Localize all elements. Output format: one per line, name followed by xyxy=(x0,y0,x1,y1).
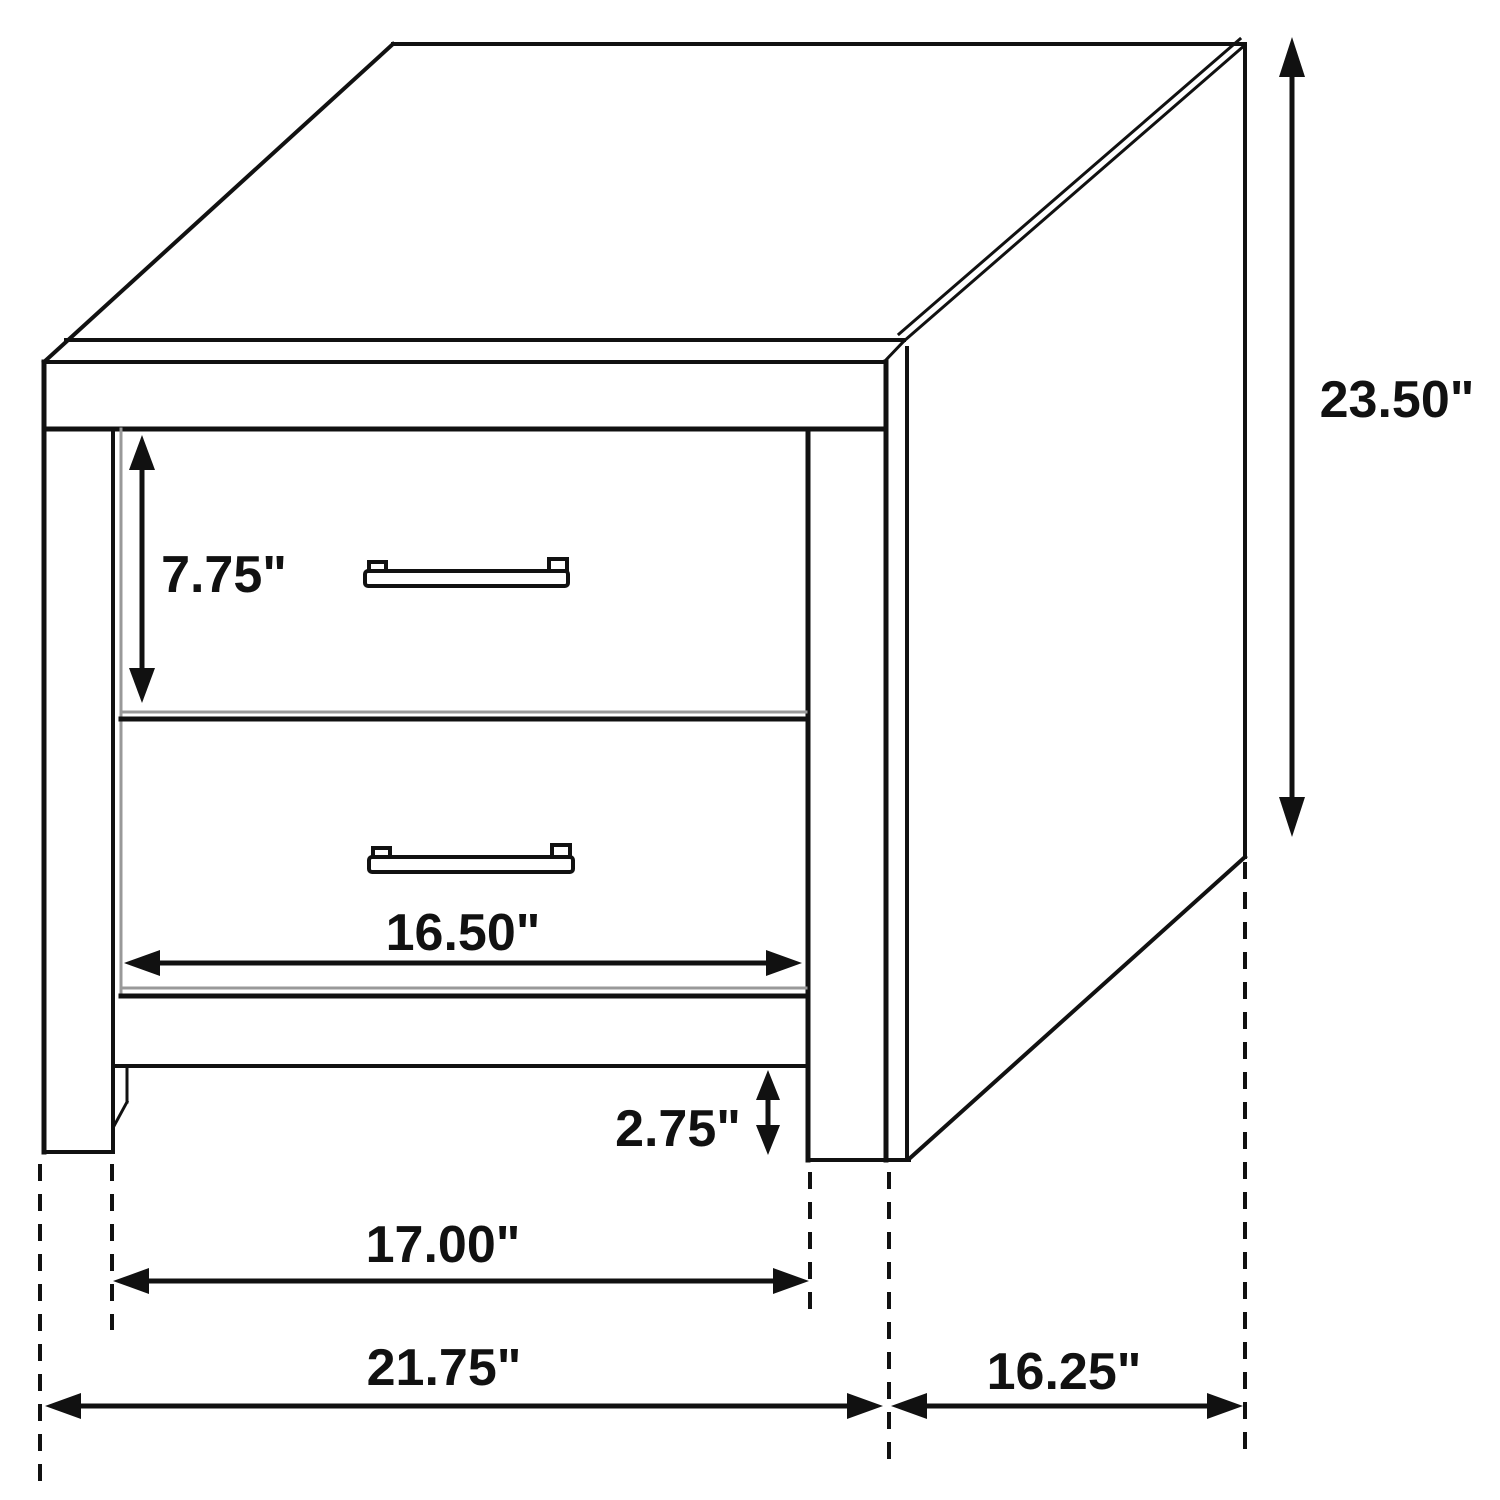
dimension-overall-height: 23.50" xyxy=(1279,37,1474,837)
side-bottom-diagonal-edge xyxy=(909,857,1245,1159)
top-panel xyxy=(44,39,1245,362)
dimension-label-inner-width: 17.00" xyxy=(366,1216,521,1274)
dimension-inner-width: 17.00" xyxy=(113,1216,809,1294)
dimension-leg-clearance: 2.75" xyxy=(615,1070,780,1158)
arrow-right-icon xyxy=(1207,1393,1243,1419)
top-right-diagonal-inner xyxy=(899,39,1240,334)
drawer-1-handle xyxy=(365,559,568,586)
arrow-left-icon xyxy=(113,1268,149,1294)
arrow-left-icon xyxy=(45,1393,81,1419)
dimension-drawer-width: 16.50" xyxy=(124,904,802,976)
arrow-up-icon xyxy=(129,435,155,470)
dimension-label-overall-width: 21.75" xyxy=(367,1339,522,1397)
dimension-drawer-front-height: 7.75" xyxy=(129,435,287,703)
arrow-down-icon xyxy=(129,668,155,703)
arrow-up-icon xyxy=(756,1070,780,1100)
arrow-down-icon xyxy=(1279,797,1305,837)
dimension-label-drawer-width: 16.50" xyxy=(386,904,541,962)
dimension-depth: 16.25" xyxy=(891,1343,1243,1419)
arrow-left-icon xyxy=(124,950,160,976)
arrow-up-icon xyxy=(1279,37,1305,77)
dimension-label-leg-clearance: 2.75" xyxy=(615,1100,741,1158)
left-leg-inner-post-chamfer xyxy=(114,1102,127,1126)
nightstand-dimension-diagram: 7.75" 23.50" 16.50" 2.75" 17 xyxy=(0,0,1500,1500)
top-right-diagonal-outer xyxy=(904,45,1245,341)
arrow-down-icon xyxy=(756,1125,780,1155)
dimension-overall-width: 21.75" xyxy=(45,1339,883,1419)
top-right-corner-chamfer xyxy=(884,341,904,362)
drawer-2-handle xyxy=(369,845,573,872)
side-panel xyxy=(907,44,1245,1160)
handle-bar xyxy=(365,571,568,586)
arrow-right-icon xyxy=(766,950,802,976)
arrow-right-icon xyxy=(847,1393,883,1419)
dimension-label-depth: 16.25" xyxy=(987,1343,1142,1401)
diagram-canvas: 7.75" 23.50" 16.50" 2.75" 17 xyxy=(0,0,1500,1500)
arrow-right-icon xyxy=(773,1268,809,1294)
arrow-left-icon xyxy=(891,1393,927,1419)
dimension-label-overall-height: 23.50" xyxy=(1320,371,1475,429)
dimension-label-drawer-front-height: 7.75" xyxy=(161,546,287,604)
top-left-diagonal-edge xyxy=(44,44,393,362)
front-frame xyxy=(44,362,909,1160)
handle-bar xyxy=(369,857,573,872)
